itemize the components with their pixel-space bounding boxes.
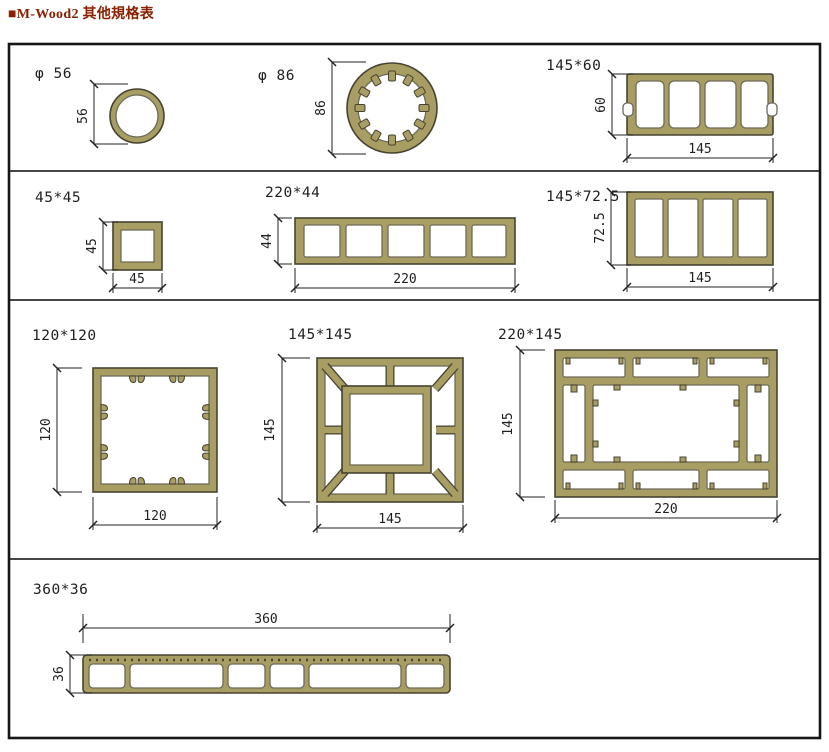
panel-d56-label: φ 56: [35, 66, 72, 82]
profile-220x145: [555, 350, 777, 497]
panel-220x145-label: 220*145: [498, 327, 563, 343]
dim-value: 36: [52, 666, 67, 682]
profile-145x145: [317, 358, 463, 502]
profile-145x725: [627, 192, 773, 265]
profile-d56: [110, 89, 164, 143]
panel-220x145: 220*145: [498, 327, 777, 523]
panel-145x725-label: 145*72.5: [546, 189, 620, 205]
panel-145x725: 145*72.5 72.5 145: [546, 189, 773, 292]
panel-120x120-label: 120*120: [32, 328, 97, 344]
dim-145x145-h: 145: [317, 505, 463, 533]
panel-360x36-label: 360*36: [33, 582, 88, 598]
panel-120x120: 120*120 120: [32, 328, 217, 530]
dim-value: 145: [263, 418, 278, 441]
profile-360x36: [83, 655, 450, 693]
dim-value: 220: [393, 272, 416, 287]
profile-bore: [358, 74, 426, 142]
panel-145x145: 145*145 1: [263, 327, 463, 533]
dim-220x44-v: 44: [260, 218, 292, 264]
dim-120x120-h: 120: [93, 497, 217, 530]
panel-145x60: 145*60 60 145: [546, 58, 777, 163]
panel-145x145-label: 145*145: [288, 327, 353, 343]
diagram-canvas: φ 56 56 φ 86: [0, 0, 829, 752]
profile-220x44: [295, 218, 515, 264]
dim-value: 120: [39, 418, 54, 441]
panel-145x60-label: 145*60: [546, 58, 601, 74]
dim-120x120-v: 120: [39, 368, 82, 492]
dim-value: 72.5: [593, 212, 608, 243]
panel-360x36: 360*36 360 36: [33, 582, 450, 693]
dim-145x145-v: 145: [263, 358, 310, 502]
dim-value: 86: [314, 100, 329, 116]
panel-45x45: 45*45 45 45: [35, 190, 162, 293]
profile-120x120: [93, 368, 217, 492]
edge-notch-right: [767, 103, 777, 116]
panel-220x44-label: 220*44: [265, 185, 320, 201]
dim-360x36-h: 360: [83, 612, 450, 643]
dim-value: 60: [594, 97, 609, 113]
dim-220x44-h: 220: [295, 268, 515, 293]
panel-220x44: 220*44 44 220: [260, 185, 515, 293]
dim-220x145-v: 145: [501, 350, 545, 497]
profile-d86: [347, 63, 437, 153]
dim-value: 145: [501, 412, 516, 435]
dim-value: 44: [260, 233, 275, 249]
profile-bore: [116, 95, 158, 137]
panel-d86-label: φ 86: [258, 68, 295, 84]
edge-notch-left: [623, 103, 633, 116]
dim-value: 45: [85, 238, 100, 254]
dim-value: 145: [688, 142, 711, 157]
dim-value: 45: [129, 272, 145, 287]
dim-145x725-h: 145: [627, 268, 773, 292]
profile-45x45: [113, 222, 162, 270]
spec-sheet-page: ■M-Wood2 其他規格表 φ 56: [0, 0, 829, 752]
dim-value: 145: [378, 512, 401, 527]
dim-45x45-h: 45: [113, 272, 162, 293]
dim-145x60-h: 145: [627, 138, 773, 163]
dim-220x145-h: 220: [555, 500, 777, 523]
dim-value: 360: [254, 612, 277, 627]
dim-value: 120: [143, 509, 166, 524]
dim-value: 56: [76, 108, 91, 124]
profile-145x60: [623, 74, 777, 135]
dim-value: 220: [654, 502, 677, 517]
panel-45x45-label: 45*45: [35, 190, 81, 206]
panel-d56: φ 56 56: [35, 66, 164, 144]
dim-value: 145: [688, 271, 711, 286]
panel-d86: φ 86: [258, 62, 437, 154]
